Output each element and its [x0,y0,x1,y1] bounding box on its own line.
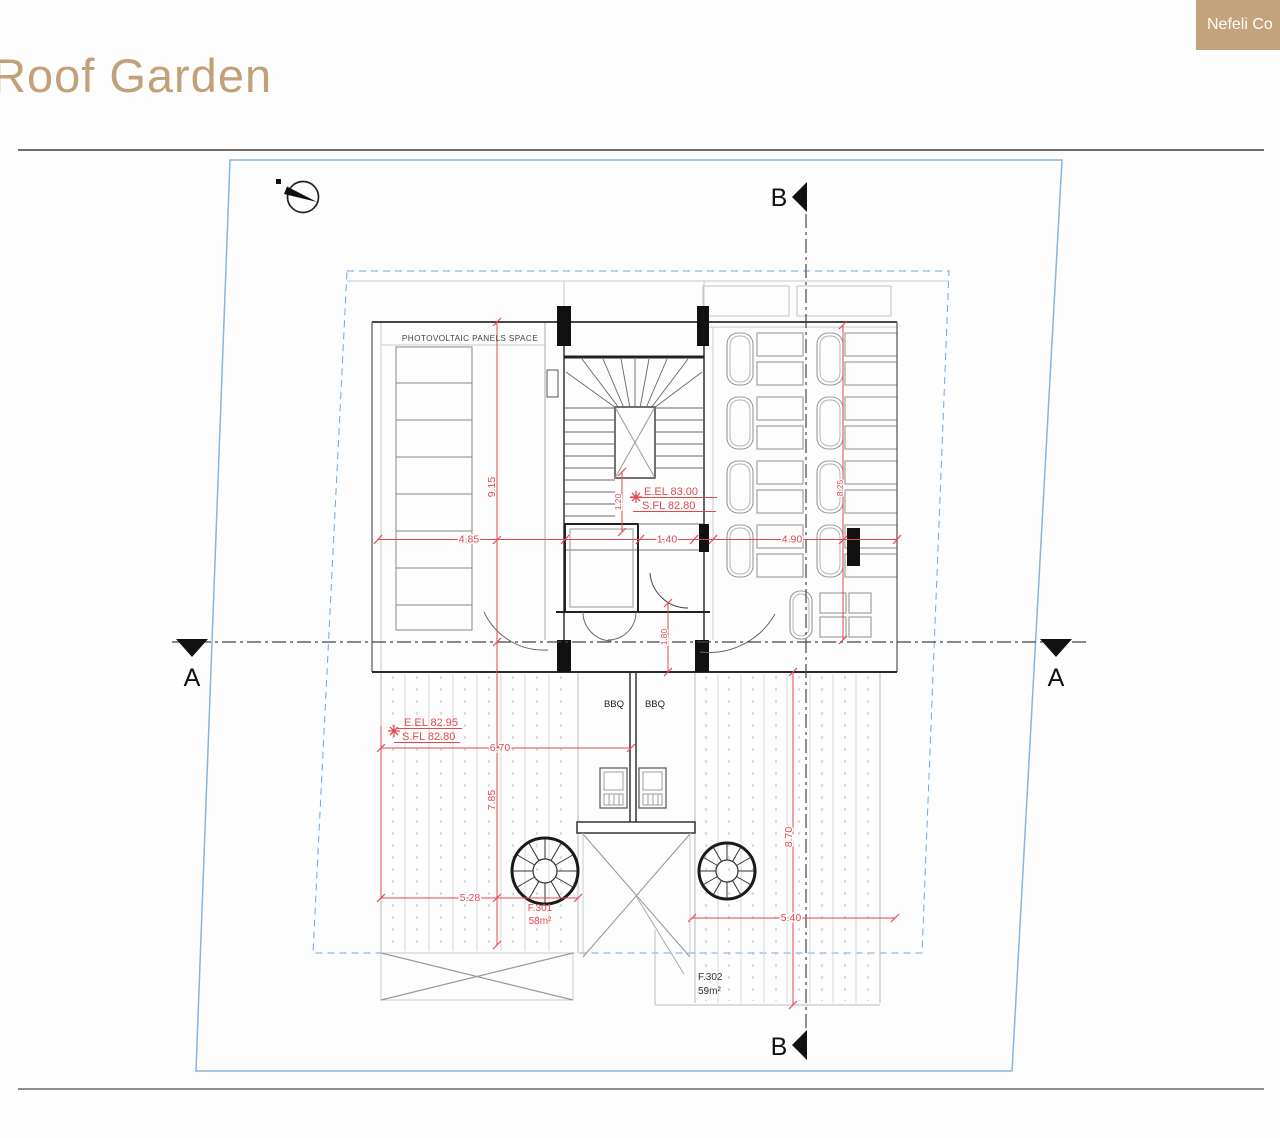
elevation-upper-line1: E.EL 83.00 [644,486,698,498]
dim-roof-left-width: 4.85 [459,534,480,546]
spiral-stair-right [699,843,755,899]
sunbed-row [727,461,897,513]
spiral-stair-left [512,838,578,904]
page: Roof Garden Nefeli Co [0,0,1280,1138]
section-marker-a-right: A [1040,639,1072,692]
dim-stair-void: 1.20 [613,493,623,510]
site-boundary [196,160,1062,1071]
roof-structure-light [347,281,949,1005]
section-letter: B [771,184,788,212]
roof-garden-floor-plan: PHOTOVOLTAIC PANELS SPACE 4.85 1.40 4.90… [0,0,1280,1138]
bbq-area [577,672,695,833]
dim-stair-width: 1.40 [657,534,678,546]
bbq-label-right: BBQ [645,699,665,710]
sunbed-row [727,397,897,449]
dim-roof-left-height: 9.15 [486,477,498,498]
dim-deck-width: 6.70 [490,742,511,754]
section-marker-b-top: B [771,182,807,212]
section-letter: A [1048,664,1065,692]
section-lines [172,214,1088,1030]
north-arrow-icon [276,179,319,213]
dim-deck-right-height: 8.70 [783,827,795,848]
section-marker-b-bottom: B [771,1030,807,1061]
photovoltaic-label: PHOTOVOLTAIC PANELS SPACE [402,334,538,343]
dim-f302-width: 5.40 [781,912,802,924]
room-f301-area: 58m² [529,916,552,927]
sunbed-terrace [727,333,897,639]
elevation-upper-line2: S.FL 82.80 [642,500,695,512]
section-letter: A [184,664,201,692]
dim-entry-depth: 1.80 [659,628,669,645]
room-f302-area: 59m² [698,986,721,997]
photovoltaic-panels [396,347,472,630]
dim-roof-right-height: 8.25 [835,479,845,496]
room-f302-name: F.302 [698,972,723,983]
room-f301-name: F.301 [528,903,553,914]
elevation-lower-line2: S.FL 82.80 [402,731,455,743]
sunbed-row [727,525,897,577]
lounge-furniture [790,591,871,639]
dim-deck-left-height: 7.85 [486,790,498,811]
sunbed-row [727,333,897,385]
dim-f301-width: 5.28 [460,892,481,904]
dim-roof-right-width: 4.90 [782,534,803,546]
section-letter: B [771,1033,788,1061]
bbq-label-left: BBQ [604,699,624,710]
section-marker-a-left: A [176,639,208,692]
elevation-lower-line1: E.EL 82.95 [404,717,458,729]
